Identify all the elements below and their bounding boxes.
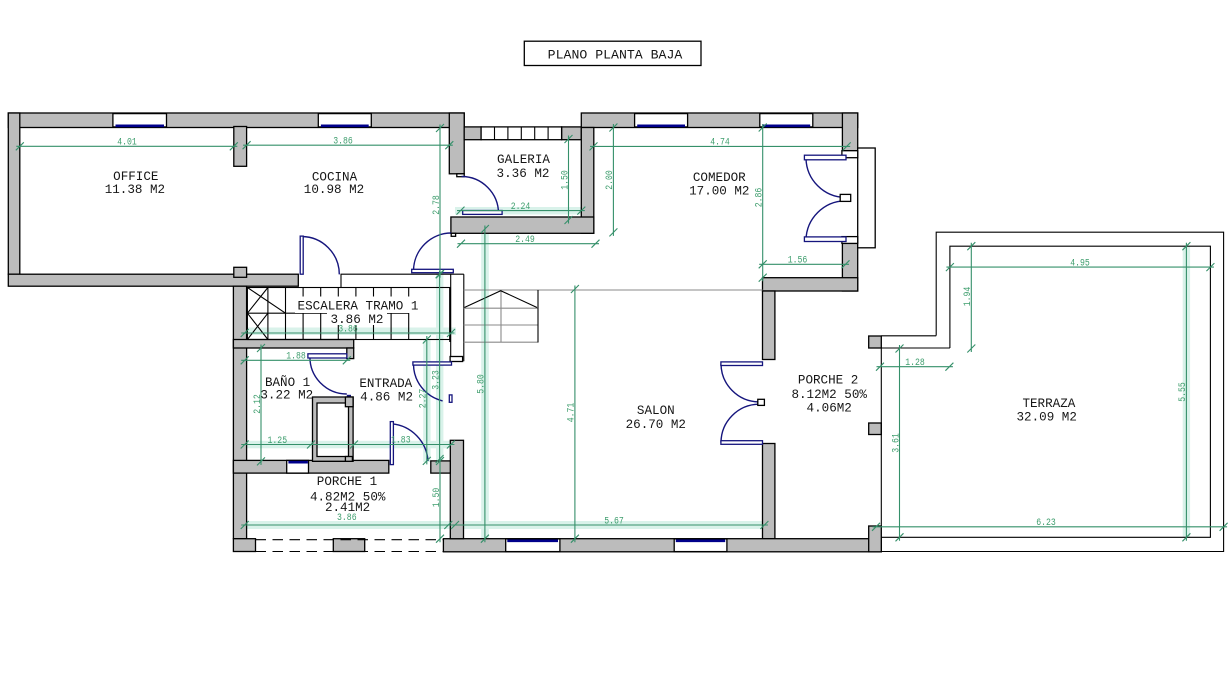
svg-text:32.09 M2: 32.09 M2 xyxy=(1017,410,1077,425)
svg-text:5.67: 5.67 xyxy=(604,515,624,527)
svg-text:5.55: 5.55 xyxy=(1177,382,1189,402)
svg-text:4.86 M2: 4.86 M2 xyxy=(360,389,413,404)
svg-text:1.50: 1.50 xyxy=(559,170,571,190)
svg-text:1.88: 1.88 xyxy=(286,351,306,363)
svg-text:GALERIA: GALERIA xyxy=(497,152,550,167)
svg-text:2.41M2: 2.41M2 xyxy=(325,500,370,515)
svg-text:1.25: 1.25 xyxy=(268,435,288,447)
svg-text:2.78: 2.78 xyxy=(431,195,443,215)
svg-text:1.94: 1.94 xyxy=(962,287,974,307)
svg-text:3.86 M2: 3.86 M2 xyxy=(331,312,384,327)
svg-text:11.38 M2: 11.38 M2 xyxy=(105,182,165,197)
svg-text:1.83: 1.83 xyxy=(391,435,411,447)
svg-text:26.70 M2: 26.70 M2 xyxy=(626,417,686,432)
svg-text:3.23: 3.23 xyxy=(430,370,442,390)
svg-text:2.24: 2.24 xyxy=(511,201,531,213)
svg-text:SALON: SALON xyxy=(637,403,675,418)
svg-text:3.61: 3.61 xyxy=(890,433,902,453)
svg-text:3.36 M2: 3.36 M2 xyxy=(497,166,550,181)
svg-text:2.27: 2.27 xyxy=(418,389,430,409)
svg-text:4.06M2: 4.06M2 xyxy=(807,400,852,415)
svg-text:3.86: 3.86 xyxy=(333,136,353,148)
svg-text:1.28: 1.28 xyxy=(905,357,925,369)
svg-text:4.95: 4.95 xyxy=(1070,257,1090,269)
svg-text:2.00: 2.00 xyxy=(604,170,616,190)
svg-text:10.98 M2: 10.98 M2 xyxy=(304,182,364,197)
svg-text:1.56: 1.56 xyxy=(788,255,808,267)
svg-text:1.50: 1.50 xyxy=(431,488,443,508)
svg-text:3.22 M2: 3.22 M2 xyxy=(260,388,313,403)
svg-text:4.01: 4.01 xyxy=(117,137,137,149)
svg-text:PORCHE 2: PORCHE 2 xyxy=(798,373,858,388)
svg-text:4.74: 4.74 xyxy=(710,137,730,149)
svg-text:2.49: 2.49 xyxy=(515,234,535,246)
svg-text:PLANO PLANTA BAJA: PLANO PLANTA BAJA xyxy=(548,48,683,63)
svg-text:4.71: 4.71 xyxy=(566,403,578,423)
svg-text:5.80: 5.80 xyxy=(476,374,488,394)
svg-text:2.86: 2.86 xyxy=(754,188,766,208)
svg-text:6.23: 6.23 xyxy=(1036,517,1056,529)
svg-text:17.00 M2: 17.00 M2 xyxy=(689,183,749,198)
svg-text:PORCHE 1: PORCHE 1 xyxy=(317,474,378,489)
